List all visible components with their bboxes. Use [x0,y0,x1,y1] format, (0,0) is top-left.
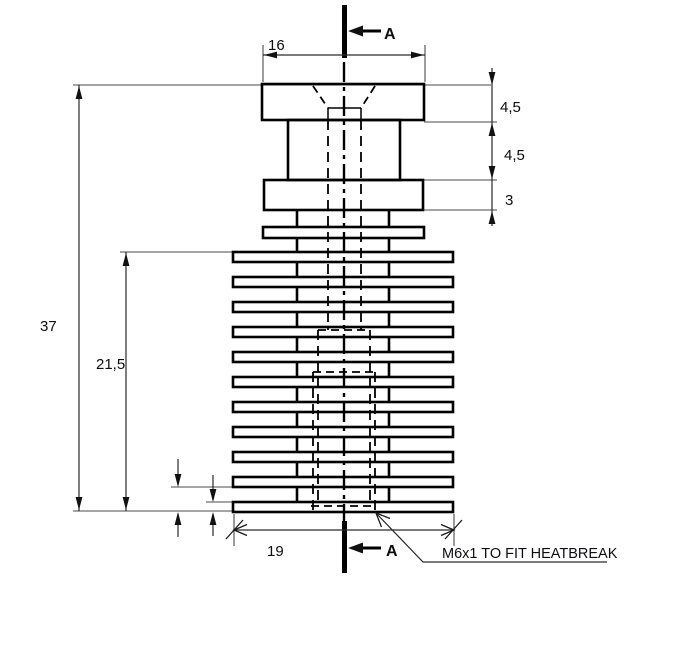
arrow-icon [175,512,182,525]
countersink-left [313,86,328,108]
arrow-icon [76,497,83,510]
dim-cap-height-label: 4,5 [500,99,521,116]
countersink-right [361,86,375,108]
arrow-icon [489,166,496,179]
drawing-canvas: A A 16 37 21,5 4,5 4,5 3 [0,0,684,659]
arrow-icon [489,211,496,224]
thread-note-label: M6x1 TO FIT HEATBREAK [442,546,618,562]
arrow-icon [210,512,217,525]
dim-top-width-label: 16 [268,37,285,54]
arrow-icon [123,497,130,510]
section-bar-bottom [342,521,347,573]
section-arrow-bottom-icon [348,543,363,554]
arrow-icon [489,72,496,85]
section-arrow-top-icon [348,26,363,37]
section-label-top: A [384,26,396,43]
arrow-icon [123,253,130,266]
technical-drawing: A A 16 37 21,5 4,5 4,5 3 [0,0,684,659]
section-label-bottom: A [386,543,398,560]
leader-note: M6x1 TO FIT HEATBREAK [376,513,618,562]
dim-bottom-width-label: 19 [267,543,284,560]
arrow-icon [175,474,182,487]
dim-total-height-label: 37 [40,318,57,335]
arrow-icon [411,52,424,59]
arrow-icon [489,123,496,136]
dim-neck-height-label: 4,5 [504,147,525,164]
section-bar-top [342,5,347,58]
dim-fin-section-label: 21,5 [96,356,125,373]
dim-flange-height-label: 3 [505,192,513,209]
arrow-icon [76,86,83,99]
arrow-icon [210,489,217,502]
